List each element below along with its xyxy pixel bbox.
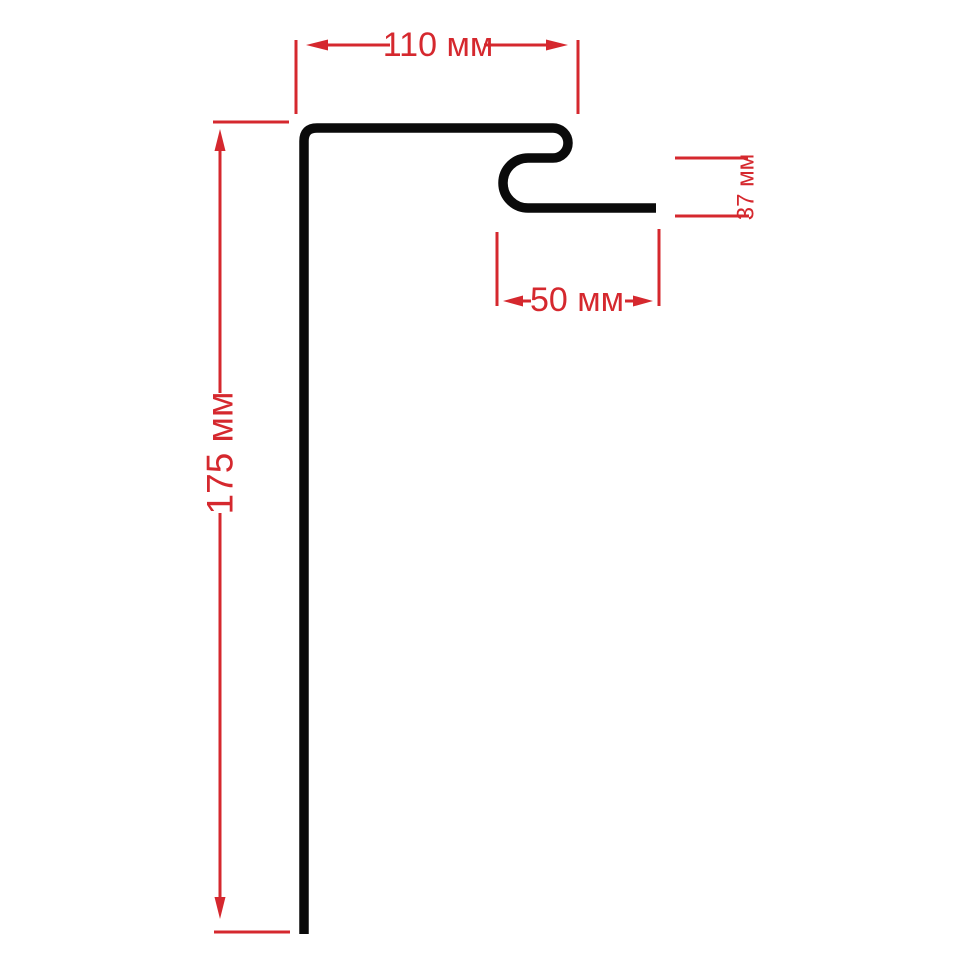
dimension-hook-width: 50 мм	[497, 229, 659, 319]
drawing-canvas: 110 мм 175 мм 50 мм 37 мм	[0, 0, 960, 960]
arrowhead-left-icon	[306, 40, 328, 51]
dimension-label-side-height: 175 мм	[200, 392, 241, 515]
profile-diagram: 110 мм 175 мм 50 мм 37 мм	[0, 0, 960, 960]
arrowhead-right-icon	[546, 40, 568, 51]
arrowhead-right-icon	[633, 296, 653, 307]
arrowhead-left-icon	[503, 296, 523, 307]
dimension-label-top-width: 110 мм	[383, 26, 493, 64]
arrowhead-up-icon	[215, 129, 226, 151]
dimension-label-hook-width: 50 мм	[530, 281, 624, 319]
dimension-side-height: 175 мм	[200, 122, 291, 932]
dimension-top-width: 110 мм	[296, 26, 578, 114]
profile-outline-path	[304, 128, 656, 934]
arrowhead-down-icon	[215, 897, 226, 919]
dimension-label-hook-height: 37 мм	[733, 154, 760, 220]
dimension-hook-height: 37 мм	[675, 154, 760, 220]
profile-outline-group	[304, 128, 656, 934]
